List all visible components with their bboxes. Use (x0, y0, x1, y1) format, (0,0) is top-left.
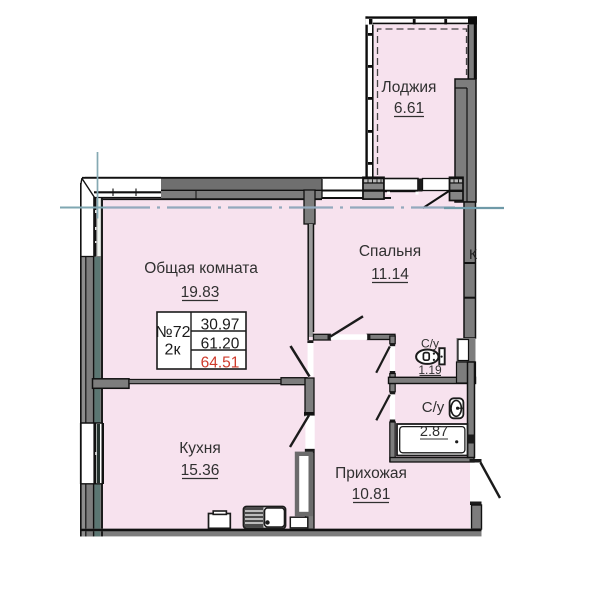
svg-text:С/у: С/у (422, 399, 445, 416)
svg-text:15.36: 15.36 (181, 462, 220, 479)
svg-text:64.51: 64.51 (201, 355, 240, 372)
svg-text:2.87: 2.87 (420, 424, 448, 440)
svg-text:11.14: 11.14 (371, 266, 409, 283)
svg-text:30.97: 30.97 (201, 317, 240, 334)
svg-text:19.83: 19.83 (181, 284, 220, 301)
svg-text:К: К (469, 246, 478, 262)
svg-text:С/у: С/у (421, 337, 439, 351)
svg-text:Спальня: Спальня (359, 243, 421, 260)
svg-text:61.20: 61.20 (201, 336, 240, 353)
svg-text:Прихожая: Прихожая (335, 465, 407, 482)
svg-text:№72: №72 (156, 324, 191, 341)
svg-text:Кухня: Кухня (179, 440, 220, 457)
svg-text:Лоджия: Лоджия (382, 79, 437, 96)
svg-text:Общая комната: Общая комната (144, 260, 258, 277)
svg-text:10.81: 10.81 (352, 486, 391, 503)
svg-text:2к: 2к (165, 342, 182, 359)
svg-text:6.61: 6.61 (394, 100, 424, 117)
